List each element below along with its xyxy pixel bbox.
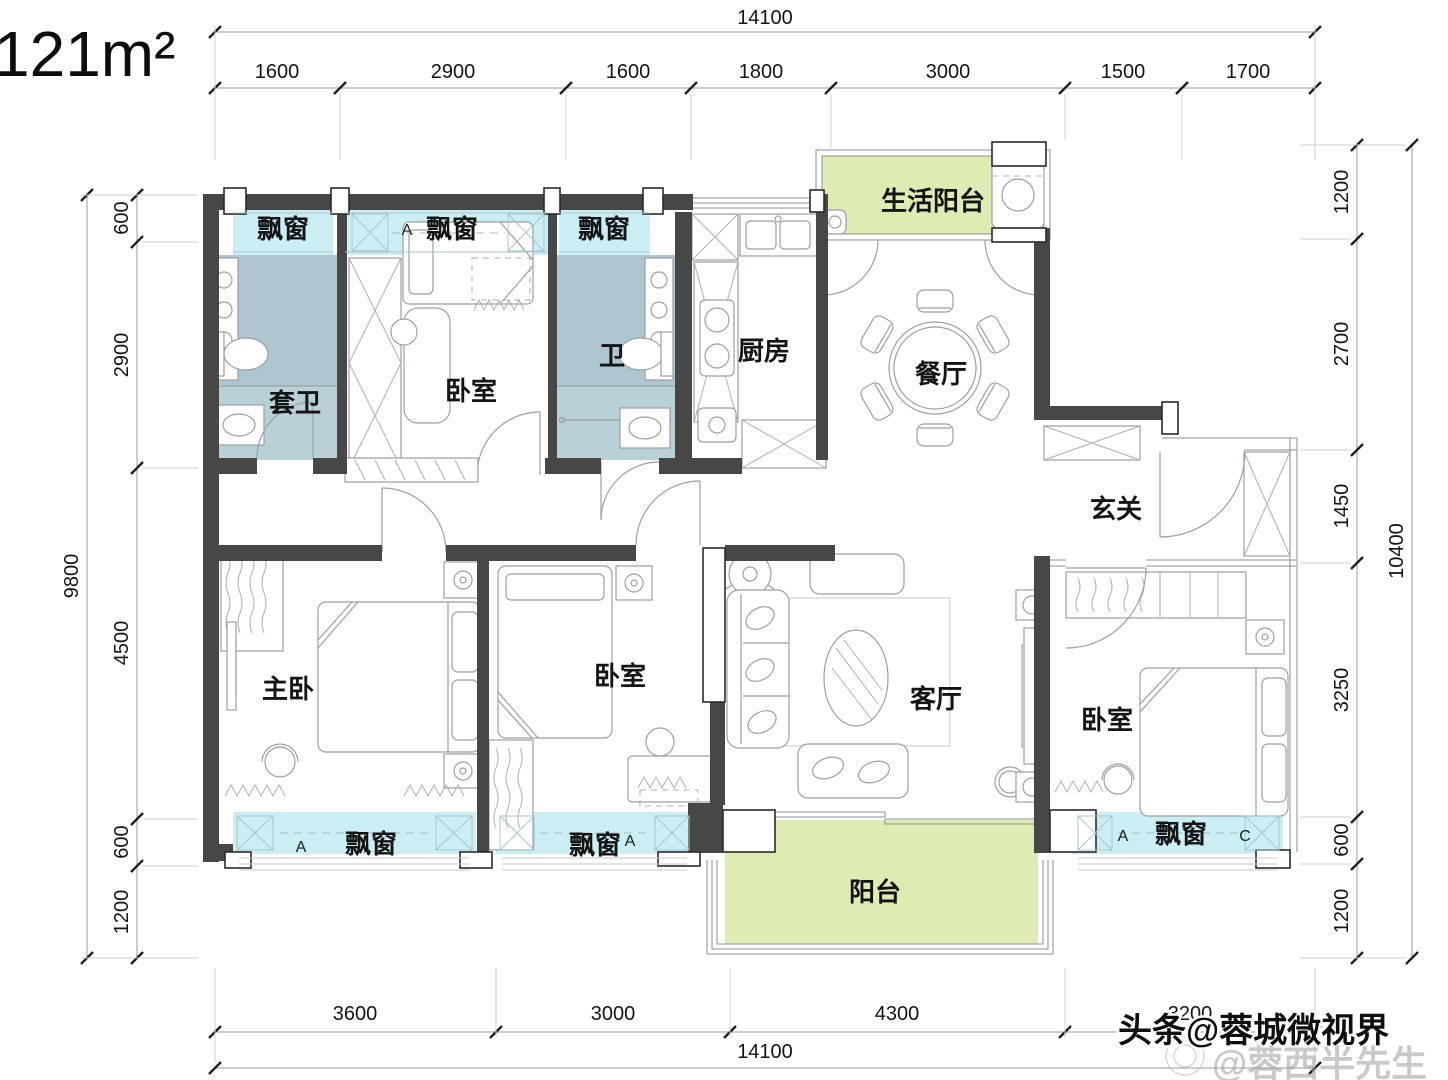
svg-text:3600: 3600: [333, 1003, 378, 1025]
svg-text:2900: 2900: [431, 61, 476, 83]
bedroom-label: 卧室: [1081, 705, 1133, 735]
window-mark-a: A: [1118, 828, 1129, 845]
svg-text:1200: 1200: [1331, 170, 1353, 215]
dimension-left: 9800 600 2900 4500 600 1200: [61, 189, 198, 964]
bay-window-label: 飘窗: [1155, 819, 1207, 849]
window-mark-a: A: [402, 222, 413, 239]
svg-text:4300: 4300: [875, 1003, 920, 1025]
entry-label: 玄关: [1090, 494, 1142, 524]
watermark-line2: @蓉西半先生: [1212, 1043, 1427, 1080]
svg-text:2700: 2700: [1331, 322, 1353, 367]
dimension-top: 14100 1600 2900 1600 1800 3000 1500 1700: [209, 7, 1321, 160]
dim-top-overall: 14100: [737, 7, 793, 29]
window-mark-c: C: [1239, 828, 1251, 845]
svg-text:3000: 3000: [926, 61, 971, 83]
svg-text:1200: 1200: [1331, 889, 1353, 934]
bay-window-label: 飘窗: [345, 829, 397, 859]
svg-text:2900: 2900: [111, 333, 133, 378]
service-balcony-label: 生活阳台: [881, 186, 985, 216]
master-bedroom-furniture: [221, 488, 482, 796]
bay-window-label: 飘窗: [569, 830, 621, 860]
svg-text:1450: 1450: [1331, 484, 1353, 529]
svg-text:1200: 1200: [111, 890, 133, 935]
bedroom2-furniture: [349, 222, 540, 475]
bath-label: 卫: [599, 341, 625, 371]
svg-text:600: 600: [111, 825, 133, 858]
dim-left-overall: 9800: [61, 554, 83, 599]
floorplan-drawing: 飘窗 飘窗 飘窗 A 套卫 卧室 卫 厨房 餐厅 生活阳台 玄关 主卧 卧室 客…: [0, 0, 1448, 1080]
floorplan-page: 飘窗 飘窗 飘窗 A 套卫 卧室 卫 厨房 餐厅 生活阳台 玄关 主卧 卧室 客…: [0, 0, 1448, 1080]
kitchen-label: 厨房: [738, 336, 790, 366]
dining-label: 餐厅: [915, 359, 967, 389]
watermark: 头条@蓉城微视界 @蓉西半先生: [1118, 1012, 1427, 1080]
svg-text:1700: 1700: [1226, 61, 1271, 83]
bay-window-label: 飘窗: [257, 214, 309, 244]
window-mark-a: A: [625, 833, 636, 850]
svg-text:1600: 1600: [255, 61, 300, 83]
bay-window-label: 飘窗: [578, 214, 630, 244]
dimension-right: 1200 2700 1450 3250 600 1200 10400: [1300, 139, 1418, 964]
svg-text:600: 600: [111, 201, 133, 234]
page-title: 121m²: [0, 18, 175, 90]
svg-text:1600: 1600: [606, 61, 651, 83]
bedroom-label: 卧室: [445, 376, 497, 406]
ensuite-bath-label: 套卫: [269, 388, 321, 418]
bedroom4-furniture: [1055, 568, 1288, 816]
svg-text:3250: 3250: [1331, 668, 1353, 713]
master-bedroom-label: 主卧: [262, 674, 314, 704]
bay-window-label: 飘窗: [426, 214, 478, 244]
living-room-label: 客厅: [910, 684, 962, 714]
living-room-furniture: [726, 546, 1048, 802]
svg-text:3000: 3000: [591, 1003, 636, 1025]
dim-bottom-overall: 14100: [737, 1041, 793, 1063]
svg-text:4500: 4500: [111, 621, 133, 666]
dim-right-overall: 10400: [1386, 523, 1408, 579]
svg-text:600: 600: [1331, 823, 1353, 856]
balcony-label: 阳台: [849, 877, 901, 907]
svg-text:1800: 1800: [739, 61, 784, 83]
window-mark-a: A: [296, 839, 307, 856]
bedroom-label: 卧室: [594, 661, 646, 691]
svg-text:1500: 1500: [1101, 61, 1146, 83]
